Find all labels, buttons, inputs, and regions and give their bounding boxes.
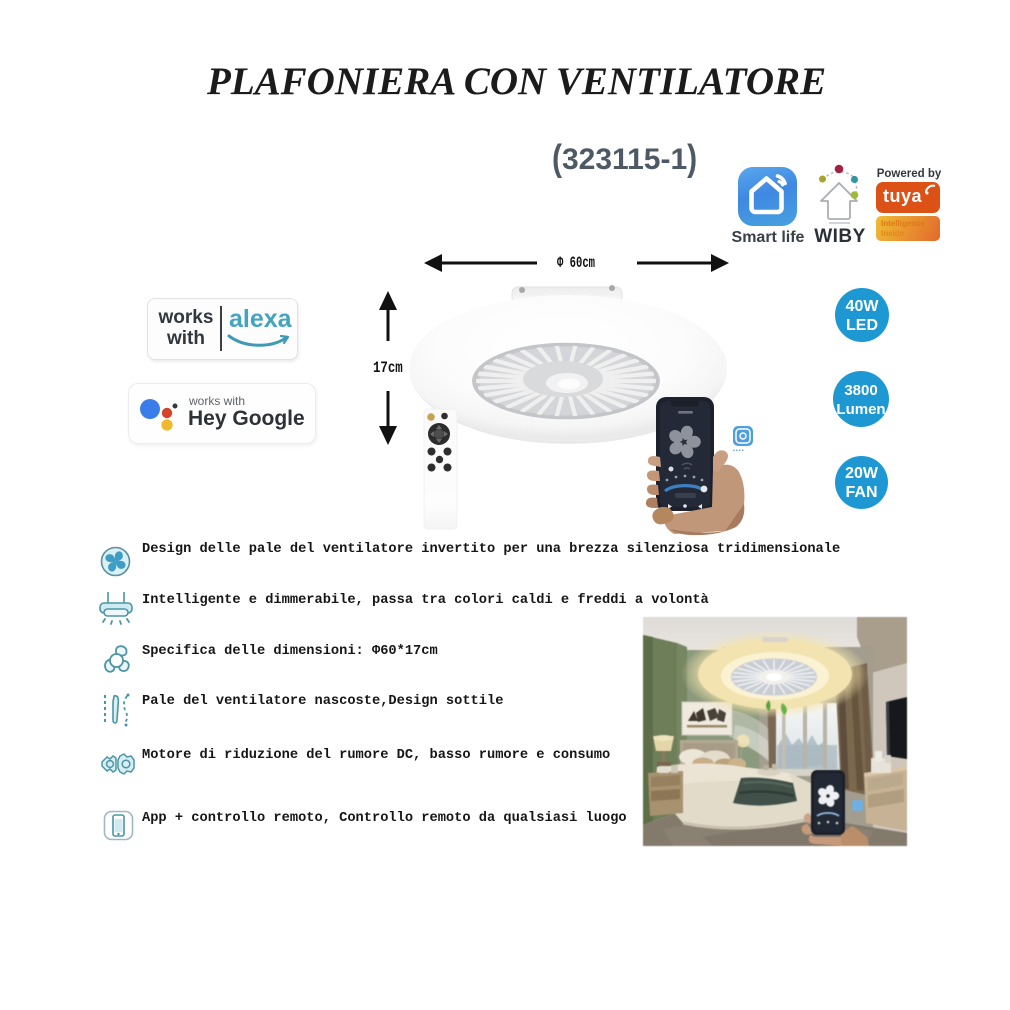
svg-text:17cm: 17cm bbox=[373, 360, 403, 378]
svg-text:Φ 60cm: Φ 60cm bbox=[557, 255, 595, 273]
svg-text:▪▪▪▪: ▪▪▪▪ bbox=[733, 448, 745, 454]
